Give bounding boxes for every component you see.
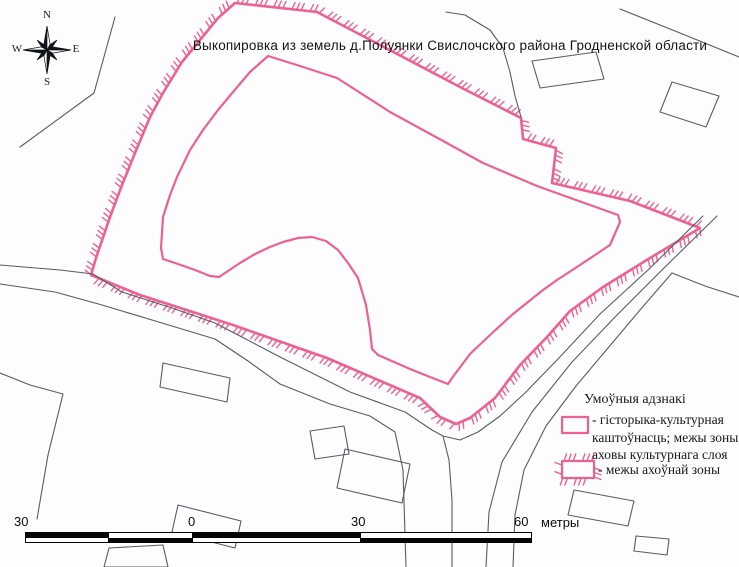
compass-north-label: N bbox=[43, 9, 51, 21]
scale-seg-bottom-half bbox=[193, 538, 360, 543]
compass-west-label: W bbox=[12, 43, 23, 55]
legend-protection-swatch bbox=[562, 461, 594, 478]
building-outline bbox=[532, 52, 604, 88]
map-title: Выкопировка из земель д.Полуянки Свислоч… bbox=[193, 38, 707, 53]
map-page: N S E W Выкопировка из земель д.Полуянки… bbox=[0, 0, 739, 567]
scale-label-left-30: 30 bbox=[14, 514, 28, 529]
legend-line: - гісторыка-культурная bbox=[592, 411, 738, 429]
scale-seg-bottom-half bbox=[26, 538, 108, 543]
scale-seg-bottom-half bbox=[361, 538, 531, 543]
protection-zone-boundary-hatch-ticks bbox=[85, 0, 701, 430]
road-branch-east bbox=[672, 273, 739, 297]
legend-item-protection-zone: - межы ахоўнай зоны bbox=[598, 462, 720, 478]
scale-bar-segment bbox=[26, 533, 109, 542]
legend-cultural-swatch bbox=[562, 417, 588, 433]
legend-item-cultural-layer: - гісторыка-культурная каштоўнасць; межы… bbox=[592, 411, 738, 464]
scale-seg-bottom-half bbox=[109, 538, 192, 543]
scale-unit-label: метры bbox=[541, 515, 579, 530]
scale-bar bbox=[25, 532, 532, 543]
scale-bar-segment bbox=[109, 533, 193, 542]
road-edge-sw-lower bbox=[0, 284, 406, 567]
stream-line bbox=[446, 12, 521, 117]
building-outline bbox=[104, 545, 168, 567]
compass-east-label: E bbox=[73, 43, 80, 55]
map-canvas bbox=[0, 0, 739, 567]
scale-bar-segment bbox=[361, 533, 531, 542]
scale-label-zero: 0 bbox=[188, 514, 195, 529]
scale-label-60: 60 bbox=[514, 514, 528, 529]
legend-line: каштоўнасць; межы зоны bbox=[592, 429, 738, 447]
compass-rose-icon: N S E W bbox=[8, 4, 86, 88]
building-outline bbox=[660, 82, 719, 127]
parcel-boundary-sw bbox=[0, 373, 63, 519]
legend-heading: Умоўныя адзнакі bbox=[584, 392, 686, 408]
compass-south-label: S bbox=[44, 76, 50, 88]
road-edge-sw-upper bbox=[0, 265, 443, 436]
legend-line: аховы культурнага слоя bbox=[592, 446, 738, 464]
building-outline bbox=[310, 426, 349, 459]
scale-bar-segment bbox=[193, 533, 361, 542]
scale-label-mid-30: 30 bbox=[351, 514, 365, 529]
protection-zone-boundary bbox=[91, 3, 700, 424]
building-outline bbox=[634, 536, 669, 555]
road-edge-south bbox=[443, 436, 452, 567]
building-outline bbox=[160, 363, 230, 402]
building-outline bbox=[337, 449, 410, 503]
